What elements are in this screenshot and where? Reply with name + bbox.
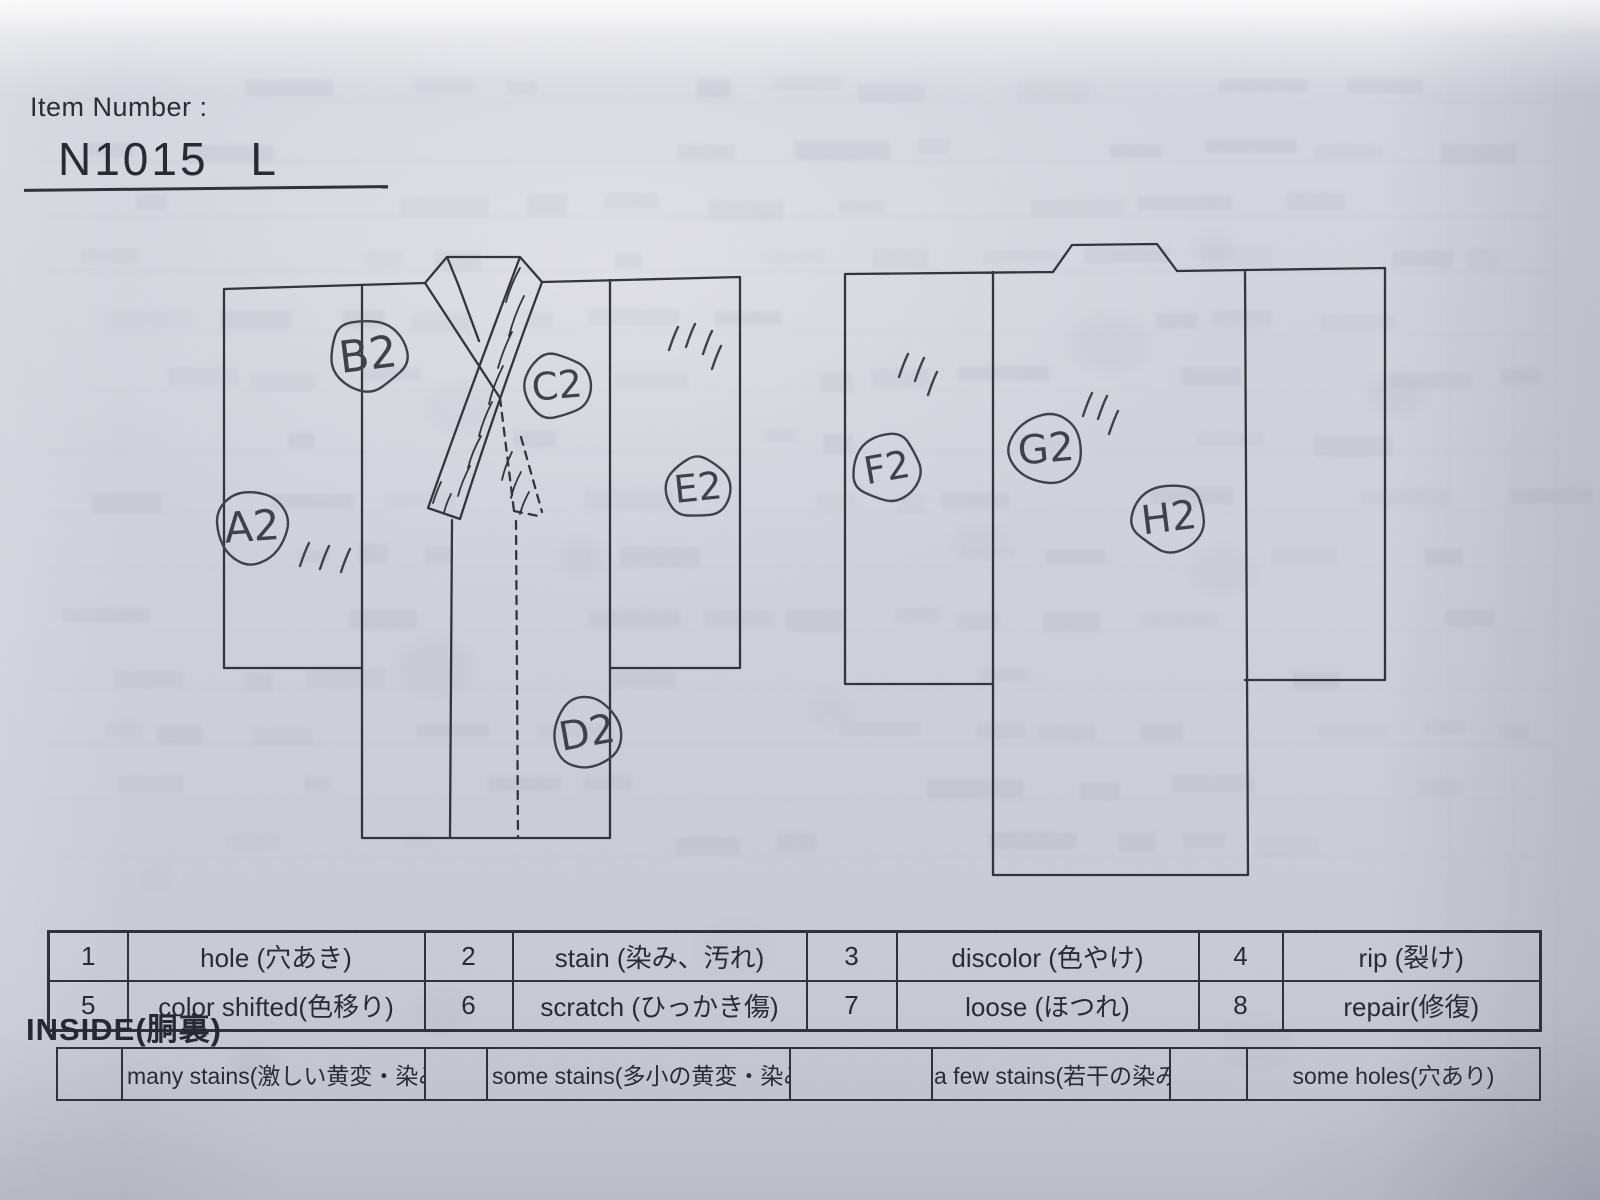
tick-stroke — [669, 327, 678, 350]
tick-stroke — [686, 324, 695, 347]
defect-marker-C2: C2 — [524, 354, 591, 418]
marker-label: F2 — [860, 442, 913, 493]
inside-check-cell — [790, 1048, 932, 1100]
tick-stroke — [1109, 411, 1118, 434]
tick-stroke — [320, 546, 329, 569]
inside-section-label: INSIDE(胴裏) — [26, 1004, 222, 1049]
defect-marker-B2: B2 — [332, 321, 408, 391]
collar-shading-strokes — [433, 268, 529, 514]
tick-stroke — [1083, 393, 1092, 416]
defect-table-row: 1 hole (穴あき) 2 stain (染み、汚れ) 3 discolor … — [49, 932, 1541, 982]
tick-stroke — [703, 331, 712, 354]
marker-label: H2 — [1139, 492, 1200, 544]
defect-code-number: 3 — [807, 932, 897, 982]
defect-table-row: 5 color shifted(色移り) 6 scratch (ひっかき傷) 7… — [49, 981, 1541, 1031]
defect-marker-G2: G2 — [1008, 414, 1080, 483]
defect-code-label: loose (ほつれ) — [897, 981, 1199, 1031]
inside-table-row: many stains(激しい黄変・染み) some stains(多小の黄変・… — [57, 1048, 1540, 1100]
defect-code-number: 2 — [425, 932, 513, 982]
defect-code-label: rip (裂け) — [1283, 932, 1541, 982]
defect-marker-D2: D2 — [554, 697, 621, 768]
marker-label: A2 — [223, 500, 282, 553]
defect-code-number: 4 — [1199, 932, 1283, 982]
defect-code-number: 8 — [1199, 981, 1283, 1031]
marker-label: E2 — [672, 463, 725, 512]
tick-stroke — [928, 372, 937, 395]
inside-condition-label: some holes(穴あり) — [1247, 1048, 1540, 1100]
marker-label: B2 — [336, 326, 400, 384]
inside-condition-label: many stains(激しい黄変・染み) — [122, 1048, 425, 1100]
defect-code-label: discolor (色やけ) — [897, 932, 1199, 982]
defect-code-number: 1 — [49, 932, 128, 982]
inside-condition-label: some stains(多小の黄変・染み) — [487, 1048, 790, 1100]
defect-marker-A2: A2 — [217, 492, 288, 564]
kimono-back-outline — [845, 244, 1385, 875]
defect-code-number: 6 — [425, 981, 513, 1031]
defect-code-table: 1 hole (穴あき) 2 stain (染み、汚れ) 3 discolor … — [47, 930, 1542, 1032]
kimono-front-outline — [224, 257, 740, 838]
inside-condition-label: a few stains(若干の染み) — [932, 1048, 1170, 1100]
inside-check-cell — [57, 1048, 122, 1100]
tick-stroke — [899, 354, 908, 377]
defect-code-label: repair(修復) — [1283, 981, 1541, 1031]
tick-stroke — [341, 549, 350, 572]
tick-marks-group — [899, 354, 937, 395]
inside-check-cell — [425, 1048, 487, 1100]
tick-stroke — [300, 543, 309, 566]
inside-condition-table: many stains(激しい黄変・染み) some stains(多小の黄変・… — [56, 1047, 1541, 1101]
defect-marker-F2: F2 — [853, 434, 920, 501]
tick-marks-group — [300, 543, 350, 572]
marker-label: D2 — [555, 706, 618, 761]
defect-code-label: scratch (ひっかき傷) — [513, 981, 807, 1031]
inside-check-cell — [1170, 1048, 1247, 1100]
marker-label: C2 — [530, 361, 584, 409]
marker-label: G2 — [1016, 424, 1076, 475]
defect-code-number: 7 — [807, 981, 897, 1031]
tick-marks-group — [1083, 393, 1118, 434]
defect-code-label: stain (染み、汚れ) — [513, 932, 807, 982]
defect-marker-E2: E2 — [666, 456, 731, 515]
tick-stroke — [915, 358, 924, 381]
inspection-sheet: Item Number : N1015 L A2B2C2D2E2F2G2H2 — [0, 0, 1600, 1200]
tick-marks-group — [669, 324, 721, 369]
tick-marks — [300, 324, 1118, 572]
tick-stroke — [712, 346, 721, 369]
defect-markers: A2B2C2D2E2F2G2H2 — [217, 321, 1204, 767]
tick-stroke — [1098, 396, 1107, 419]
defect-code-label: hole (穴あき) — [128, 932, 425, 982]
defect-marker-H2: H2 — [1131, 486, 1204, 553]
sheet-content: Item Number : N1015 L A2B2C2D2E2F2G2H2 — [0, 0, 1600, 1200]
